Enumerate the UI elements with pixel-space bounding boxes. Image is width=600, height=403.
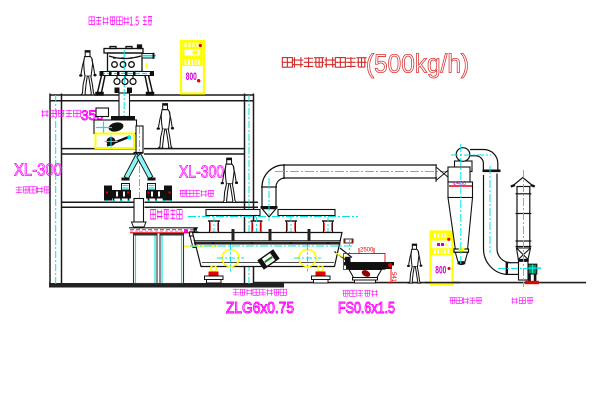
svg-text:800: 800 [186, 71, 197, 83]
svg-text:2500: 2500 [360, 248, 374, 254]
svg-text:Φ400: Φ400 [453, 181, 467, 187]
svg-text:(500kg/h): (500kg/h) [366, 51, 469, 79]
svg-text:541: 541 [390, 272, 396, 283]
svg-text:ZLG6x0.75: ZLG6x0.75 [226, 300, 294, 317]
svg-text:1.5: 1.5 [130, 14, 140, 29]
svg-text:XL-300: XL-300 [14, 160, 62, 180]
svg-text:FS0.6x1.5: FS0.6x1.5 [338, 300, 395, 317]
svg-text:XL-300: XL-300 [179, 162, 224, 182]
svg-text:800: 800 [435, 265, 446, 277]
